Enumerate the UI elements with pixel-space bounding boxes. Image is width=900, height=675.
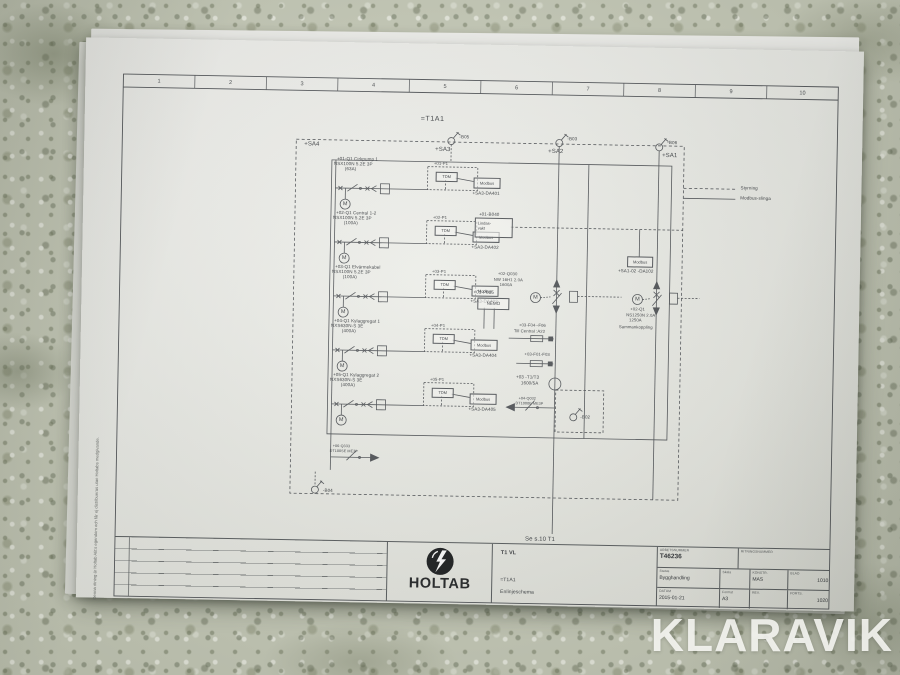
q032-type: DT1000E ME3P xyxy=(515,401,543,406)
field-value: MAS xyxy=(752,576,785,583)
revision-table-divider xyxy=(128,537,130,596)
feeder-out: +SA3-DA404 xyxy=(469,352,496,358)
ruler-number: 10 xyxy=(767,86,839,99)
diagram-title: =T1A1 xyxy=(421,115,445,123)
tdm-box: TDM xyxy=(436,172,458,182)
feeder-amp: (100A) xyxy=(344,220,358,225)
lightning-bolt-icon xyxy=(426,548,453,575)
tdm-box: TDM xyxy=(434,280,456,290)
field-value: 1020 xyxy=(790,597,828,604)
field-status: Status Bygghandling xyxy=(657,568,719,588)
title-fields-cell: ARBETSNUMMER T46236 RITNINGSNUMMER Statu… xyxy=(656,547,830,609)
drawing-info-cell: T1 VL =T1A1 Enlinjeschema xyxy=(491,544,657,606)
field-ritningsnummer: RITNINGSNUMMER xyxy=(738,548,831,570)
feeder-amp: (100A) xyxy=(343,274,357,279)
f0406-note: Till Central :A22 xyxy=(514,329,545,334)
marker-b04: -B04 xyxy=(323,488,333,493)
field-rev: REV. xyxy=(749,590,787,610)
b040-box: Lindas- vakt xyxy=(475,217,513,237)
field-skala: Skala xyxy=(719,569,749,589)
ruler-number: 9 xyxy=(695,85,767,98)
revision-table xyxy=(114,537,387,601)
zone-sa1: +SA1 xyxy=(662,153,677,160)
field-value: T46236 xyxy=(660,553,736,561)
field-value: 1010 xyxy=(790,577,828,584)
motor-symbol: M xyxy=(339,255,349,261)
field-label: REV. xyxy=(752,591,785,596)
da102-id: +SA1-02 -DA102 xyxy=(618,268,654,274)
marker-b06: -B06 xyxy=(667,140,677,145)
field-value: Bygghandling xyxy=(659,574,717,581)
motor-symbol: M xyxy=(340,201,350,207)
p035-id: +01-P035 xyxy=(474,289,495,295)
modbus-box: Modbus xyxy=(469,393,496,404)
q333-type: DT100SE ME3P xyxy=(330,448,358,453)
holtab-logo-icon xyxy=(426,548,453,575)
ruler-number: 3 xyxy=(266,77,338,90)
schematic-linework xyxy=(76,37,864,611)
legend-modbus: Modbus-slinga xyxy=(740,195,771,201)
q1-note: Sammankoppling xyxy=(619,325,653,330)
q030-amp: 1600A xyxy=(500,283,513,288)
photo-scene: 1 2 3 4 5 6 7 8 9 10 Denna ritning är Ho… xyxy=(0,0,900,675)
field-konstr: KONSTR. MAS xyxy=(749,570,787,590)
field-label: DATUM xyxy=(659,589,717,594)
motor-symbol: M xyxy=(337,363,347,369)
zone-sa2: +SA2 xyxy=(548,149,563,156)
field-datum: DATUM 2015-01-21 xyxy=(657,588,719,608)
motor-symbol: M xyxy=(530,295,540,301)
title-row-3: DATUM 2015-01-21 Format A3 REV. FORTS. 1… xyxy=(657,587,829,610)
feeder-meter-id: +02-P1 xyxy=(433,216,447,221)
feeder-meter-id: +05-P1 xyxy=(430,378,444,383)
tdm-box: TDM xyxy=(433,334,455,344)
modbus-box: Modbus xyxy=(473,177,500,188)
feeder-amp: (63A) xyxy=(345,166,357,171)
nemo-box: NEMO xyxy=(477,298,509,311)
tdm-box: TDM xyxy=(432,388,454,398)
legend-styrning: Styrning xyxy=(740,185,757,190)
field-value: A3 xyxy=(722,596,747,602)
motor-symbol: M xyxy=(632,296,642,302)
motor-symbol: M xyxy=(338,309,348,315)
field-label: RITNINGSNUMMER xyxy=(741,549,829,555)
motor-symbol: M xyxy=(336,417,346,423)
ruler-number: 8 xyxy=(624,84,696,97)
da102-modbus-box: Modbus xyxy=(627,256,653,267)
b040-id: +01-B040 xyxy=(479,212,500,218)
marker-b03: -B03 xyxy=(567,136,577,141)
ruler-number: 1 xyxy=(123,75,195,88)
system-designation: =T1A1 xyxy=(500,578,515,584)
project-name: T1 VL xyxy=(501,550,517,557)
field-arbetsnummer: ARBETSNUMMER T46236 xyxy=(658,547,738,568)
zone-sa3: +SA3 xyxy=(435,147,450,154)
field-label: BLAD xyxy=(790,571,828,576)
field-format: Format A3 xyxy=(719,589,749,609)
marker-b02: -B02 xyxy=(580,414,590,419)
drawing-paper: 1 2 3 4 5 6 7 8 9 10 Denna ritning är Ho… xyxy=(76,37,864,611)
field-label: Skala xyxy=(722,570,747,574)
t1t3-id: +03 -T1/T3 xyxy=(516,374,539,380)
feeder-meter-id: +03-P1 xyxy=(432,270,446,275)
feeder-out: +SA3-DA405 xyxy=(468,406,495,412)
feeder-out: +SA3-DA402 xyxy=(471,244,498,250)
field-label: Status xyxy=(659,569,717,574)
feeder-amp: (400A) xyxy=(342,328,356,333)
feeder-meter-id: +01-P1 xyxy=(434,162,448,167)
marker-b05: -B05 xyxy=(459,134,469,139)
field-label: Format xyxy=(722,590,747,594)
holtab-logo-text: HOLTAB xyxy=(387,575,492,593)
modbus-box: Modbus xyxy=(470,339,497,350)
ruler-number: 5 xyxy=(409,80,481,93)
f0103-id: +03-F01-F03 xyxy=(524,352,550,357)
ruler-number: 6 xyxy=(481,81,553,94)
logo-cell: HOLTAB xyxy=(386,542,492,603)
q1-amp: 1250A xyxy=(629,318,642,323)
feeder-out: +SA3-DA401 xyxy=(472,190,499,196)
field-blad: BLAD 1010 xyxy=(787,570,830,590)
document-type: Enlinjeschema xyxy=(500,590,534,596)
tdm-box: TDM xyxy=(435,226,457,236)
ruler-number: 4 xyxy=(338,78,410,91)
field-label: FORTS. xyxy=(790,591,828,596)
feeder-amp: (400A) xyxy=(341,382,355,387)
klaravik-watermark: KLARAVIK xyxy=(651,608,893,662)
field-value: 2015-01-21 xyxy=(659,594,717,601)
ruler-number: 7 xyxy=(552,82,624,95)
b040-box-line2: vakt xyxy=(476,225,512,231)
t1t3-ratio: 1600/5A xyxy=(521,380,539,385)
zone-sa4: +SA4 xyxy=(304,141,319,148)
field-label: KONSTR. xyxy=(752,571,785,576)
feeder-meter-id: +04-P1 xyxy=(431,324,445,329)
ruler-number: 2 xyxy=(195,76,267,89)
